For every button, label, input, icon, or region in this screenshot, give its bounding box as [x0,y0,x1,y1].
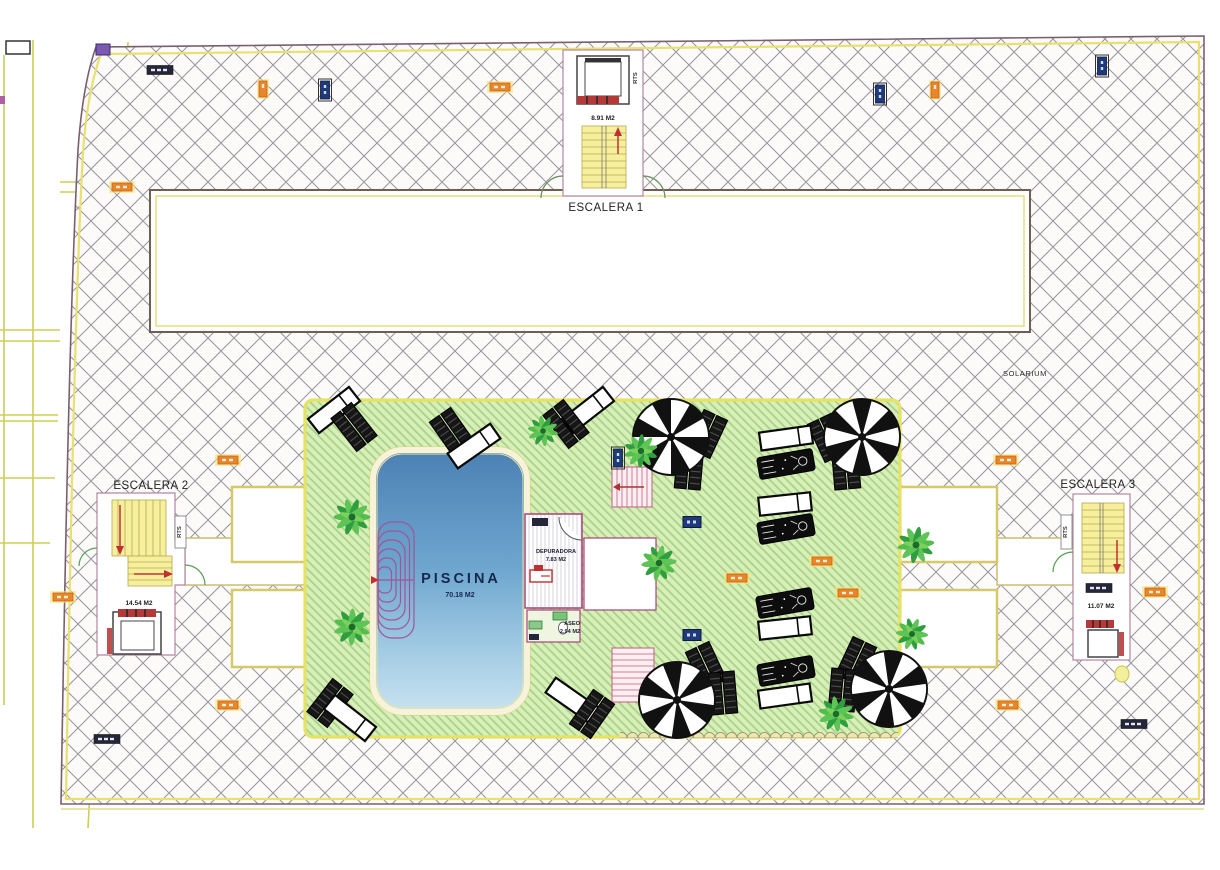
escalera3-area-label: 11.07 M2 [1088,603,1115,610]
level-badge-icon [94,735,120,744]
escalera1-area-label: 8.91 M2 [591,115,615,122]
boundary-tick [0,96,5,104]
storage-room [584,538,656,610]
level-badge-icon [1086,584,1112,593]
stairs-icon [1082,503,1124,573]
garden-stairs-top [612,467,652,507]
rts-label: RTS [1063,526,1069,538]
level-badge-icon [529,634,539,640]
drain-badge-icon [319,79,332,101]
pool-label: PISCINA [421,571,501,587]
depuradora-area-label: 7.83 M2 [546,557,566,563]
level-badge-icon [809,555,835,567]
level-badge-icon [487,81,513,93]
level-badge-icon [835,587,861,599]
drain-badge-icon [683,517,701,528]
pool-area-label: 70.18 M2 [445,592,474,599]
aseo-room: ASEO 2.94 M2 [527,610,581,642]
site-plan-canvas: PISCINA 70.18 M2 DEPURADORA 7.83 M2 ASEO… [0,0,1220,870]
drain-badge-icon [612,447,625,469]
level-badge-icon [993,454,1019,466]
drain-badge-icon [683,630,701,641]
escalera2-area-label: 14.54 M2 [125,600,152,607]
corner-badge-icon [96,44,110,55]
depuradora-label: DEPURADORA [536,549,576,555]
west-room-upper [232,487,312,562]
escalera3-title: ESCALERA 3 [1060,479,1135,491]
escalera1-title: ESCALERA 1 [568,202,643,214]
stairs-icon [582,126,626,188]
rts-label: RTS [633,72,639,84]
sunbed-icon [758,616,812,639]
level-badge-icon [532,518,548,526]
level-badge-icon [109,181,135,193]
aseo-label: ASEO [564,621,581,627]
level-badge-icon [215,699,241,711]
pool: PISCINA 70.18 M2 [370,447,530,715]
level-badge-icon [147,66,173,75]
site-plan: PISCINA 70.18 M2 DEPURADORA 7.83 M2 ASEO… [0,0,1220,870]
parasol-icon [633,399,709,475]
drain-badge-icon [1096,55,1109,77]
west-room-lower [232,590,312,667]
level-badge-icon [1142,586,1168,598]
elevator-icon [107,609,161,654]
planter-icon [1115,666,1129,682]
escalera2-title: ESCALERA 2 [113,480,188,492]
rts-label: RTS [177,526,183,538]
level-badge-icon [1121,720,1147,729]
aseo-area-label: 2.94 M2 [560,629,580,635]
sunbed-icon [758,492,812,515]
level-badge-icon [50,591,76,603]
depuradora-room: DEPURADORA 7.83 M2 [525,514,582,608]
level-badge-icon [995,699,1021,711]
solarium-label: SOLARIUM [1003,369,1047,378]
drain-badge-icon [929,80,941,100]
elevator-icon [577,56,629,104]
toilet-icon [553,612,567,620]
sink-icon [529,621,542,629]
level-badge-icon [724,572,750,584]
legend-box [6,41,30,54]
drain-badge-icon [257,79,269,99]
level-badge-icon [215,454,241,466]
drain-badge-icon [874,83,887,105]
